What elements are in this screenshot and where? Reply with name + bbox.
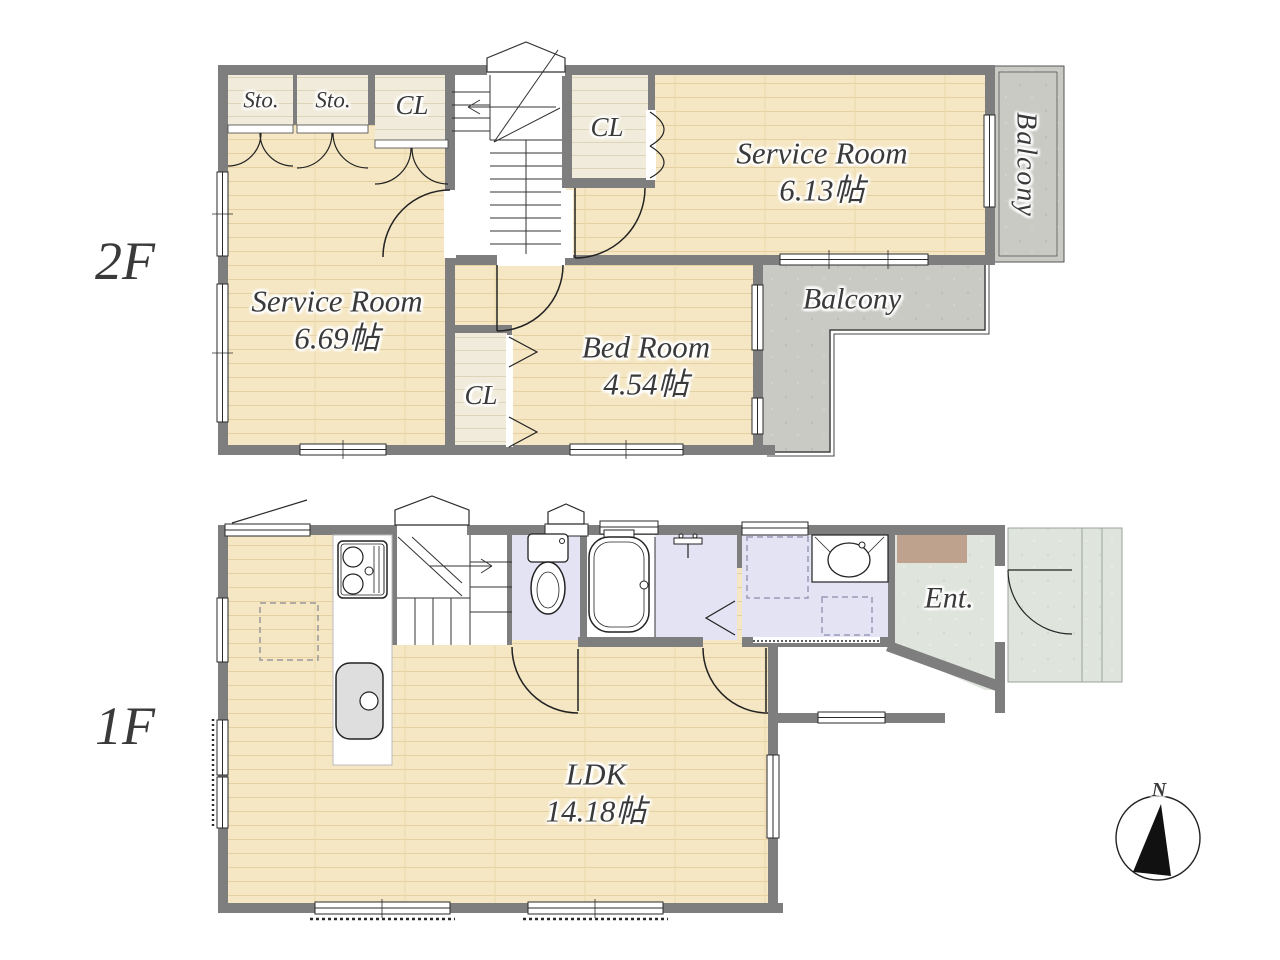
ldk-label: LDK 14.18帖 bbox=[546, 756, 647, 829]
closet-mid-label: CL bbox=[590, 112, 623, 144]
compass bbox=[1116, 796, 1200, 880]
floor1-plan bbox=[213, 496, 1122, 919]
service-room-a-label: Service Room 6.69帖 bbox=[237, 283, 437, 356]
closet-top-label: CL bbox=[395, 90, 428, 122]
floor2-label: 2F bbox=[95, 230, 155, 294]
kitchen-sink bbox=[336, 663, 383, 739]
service-room-b-label: Service Room 6.13帖 bbox=[736, 135, 907, 208]
balcony-side-label: Balcony bbox=[1009, 112, 1042, 218]
bed-room-name: Bed Room bbox=[582, 329, 710, 366]
bed-room-label: Bed Room 4.54帖 bbox=[582, 329, 710, 402]
ldk-name: LDK bbox=[546, 756, 647, 793]
bed-room-area: 4.54帖 bbox=[582, 366, 710, 403]
shower-room-floor bbox=[655, 535, 737, 640]
service-room-a-name: Service Room bbox=[237, 283, 437, 320]
ldk-area: 14.18帖 bbox=[546, 793, 647, 830]
service-room-b-area: 6.13帖 bbox=[736, 172, 907, 209]
entrance-label: Ent. bbox=[924, 580, 973, 615]
floor-plan: 2F Sto. Sto. CL CL CL Service Room 6.69帖… bbox=[0, 0, 1280, 960]
service-room-b-name: Service Room bbox=[736, 135, 907, 172]
storage1-label: Sto. bbox=[243, 86, 278, 113]
service-room-b-entry-floor bbox=[566, 188, 650, 265]
washbasin bbox=[812, 535, 888, 582]
stove bbox=[338, 541, 387, 598]
stair-hall-2f-floor bbox=[452, 75, 566, 265]
shoe-cabinet bbox=[897, 535, 967, 563]
storage2-label: Sto. bbox=[315, 86, 350, 113]
floor1-label: 1F bbox=[95, 695, 155, 759]
compass-north-label: N bbox=[1152, 779, 1166, 803]
balcony-rear-label: Balcony bbox=[803, 281, 901, 316]
toilet-fixture bbox=[528, 534, 568, 614]
bathtub bbox=[589, 530, 649, 632]
service-room-a-area: 6.69帖 bbox=[237, 320, 437, 357]
porch bbox=[1008, 528, 1122, 682]
closet-bottom-label: CL bbox=[464, 380, 497, 412]
